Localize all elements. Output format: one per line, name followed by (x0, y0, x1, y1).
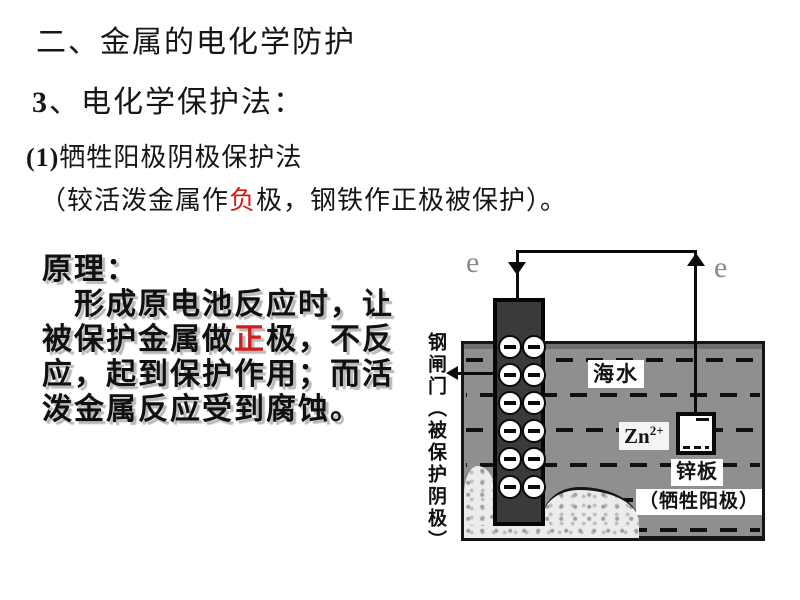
circuit-wire-top (516, 250, 697, 253)
zinc-ion-label: Zn2+ (619, 422, 669, 450)
section-number: 3 (32, 86, 49, 119)
gate-pointer-arrow-icon (446, 366, 458, 380)
minus-charge-icon (522, 363, 546, 387)
principle-line2: 形成原电池反应时，让 (42, 287, 442, 322)
method-number: (1) (26, 143, 59, 172)
steel-gate-label: 钢闸门（被保护阴极） (421, 332, 449, 554)
principle-line4: 应，起到保护作用；而活 (42, 357, 442, 392)
zinc-ion-base: Zn (624, 424, 650, 448)
minus-charge-icon (498, 335, 522, 359)
principle-label: 原理： (42, 252, 442, 287)
steel-gate-electrode (493, 298, 545, 526)
method-text: 牺牲阳极阴极保护法 (59, 143, 302, 172)
minus-charge-icon (498, 475, 522, 499)
minus-charge-icon (522, 447, 546, 471)
minus-charge-icon (522, 475, 546, 499)
section-text: 、电化学保护法： (49, 86, 305, 119)
principle-line3-pre: 被保护金属做 (42, 323, 234, 356)
electron-label-left: e (466, 248, 479, 278)
zinc-ion-charge: 2+ (650, 423, 664, 438)
principle-line3: 被保护金属做正极，不反 (42, 322, 442, 357)
principle-line5: 泼金属反应受到腐蚀。 (42, 392, 442, 427)
minus-charge-icon (498, 363, 522, 387)
zinc-plate (676, 412, 716, 455)
minus-charge-icon (498, 391, 522, 415)
minus-charge-icon (522, 335, 546, 359)
principle-line3-post: 极，不反 (266, 323, 394, 356)
slide-title: 二、金属的电化学防护 (36, 28, 356, 58)
seabed-rock (464, 526, 639, 538)
method-heading: (1)牺牲阳极阴极保护法 (26, 145, 302, 171)
circuit-wire-left (516, 250, 519, 300)
seawater-label: 海水 (588, 360, 644, 388)
principle-highlight-positive: 正 (234, 323, 266, 356)
electron-flow-down-arrow-icon (508, 262, 526, 275)
section-heading: 3、电化学保护法： (32, 88, 305, 118)
slide: 二、金属的电化学防护 3、电化学保护法： (1)牺牲阳极阴极保护法 （较活泼金属… (0, 0, 800, 600)
minus-charge-icon (522, 391, 546, 415)
electron-label-right: e (714, 253, 727, 283)
sacrificial-anode-label: （牺牲阳极） (636, 489, 762, 515)
note-pre: （较活泼金属作 (40, 186, 229, 215)
minus-charge-icon (498, 419, 522, 443)
electron-flow-up-arrow-icon (687, 253, 705, 266)
circuit-wire-right (694, 250, 697, 416)
note-highlight-negative: 负 (229, 186, 256, 215)
note-post: 极，钢铁作正极被保护）。 (256, 186, 567, 215)
method-note: （较活泼金属作负极，钢铁作正极被保护）。 (40, 188, 567, 214)
minus-charge-icon (522, 419, 546, 443)
zinc-plate-label: 锌板 (671, 459, 723, 486)
principle-block: 原理： 形成原电池反应时，让 被保护金属做正极，不反 应，起到保护作用；而活 泼… (42, 252, 442, 427)
minus-charge-icon (498, 447, 522, 471)
gate-pointer-line (456, 372, 493, 375)
